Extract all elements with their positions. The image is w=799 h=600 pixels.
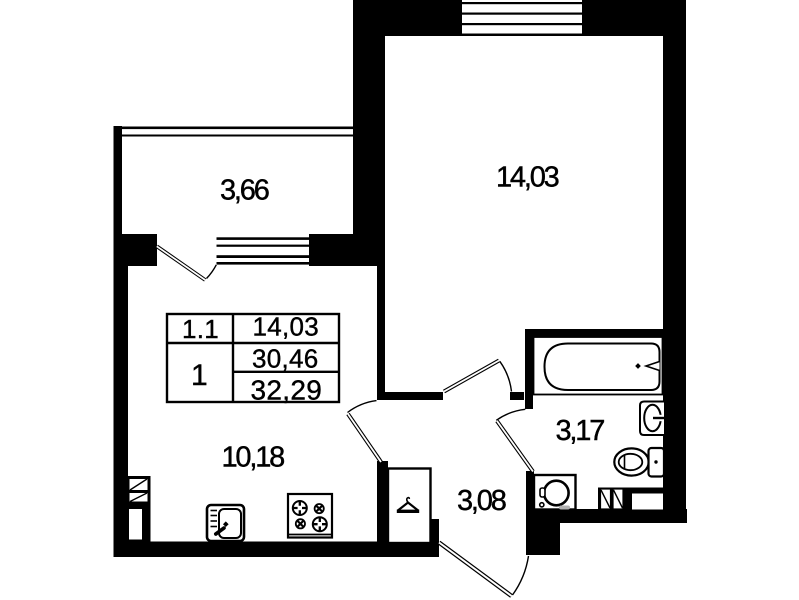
svg-text:3,08: 3,08 — [457, 485, 506, 517]
svg-text:32,29: 32,29 — [251, 375, 323, 406]
svg-text:3,66: 3,66 — [220, 175, 269, 207]
svg-text:1.1: 1.1 — [182, 314, 219, 344]
svg-text:14,03: 14,03 — [496, 162, 559, 194]
svg-text:30,46: 30,46 — [252, 343, 319, 373]
svg-text:1: 1 — [191, 359, 208, 392]
svg-text:10,18: 10,18 — [222, 442, 285, 474]
svg-text:14,03: 14,03 — [253, 312, 320, 342]
svg-text:3,17: 3,17 — [556, 415, 605, 447]
